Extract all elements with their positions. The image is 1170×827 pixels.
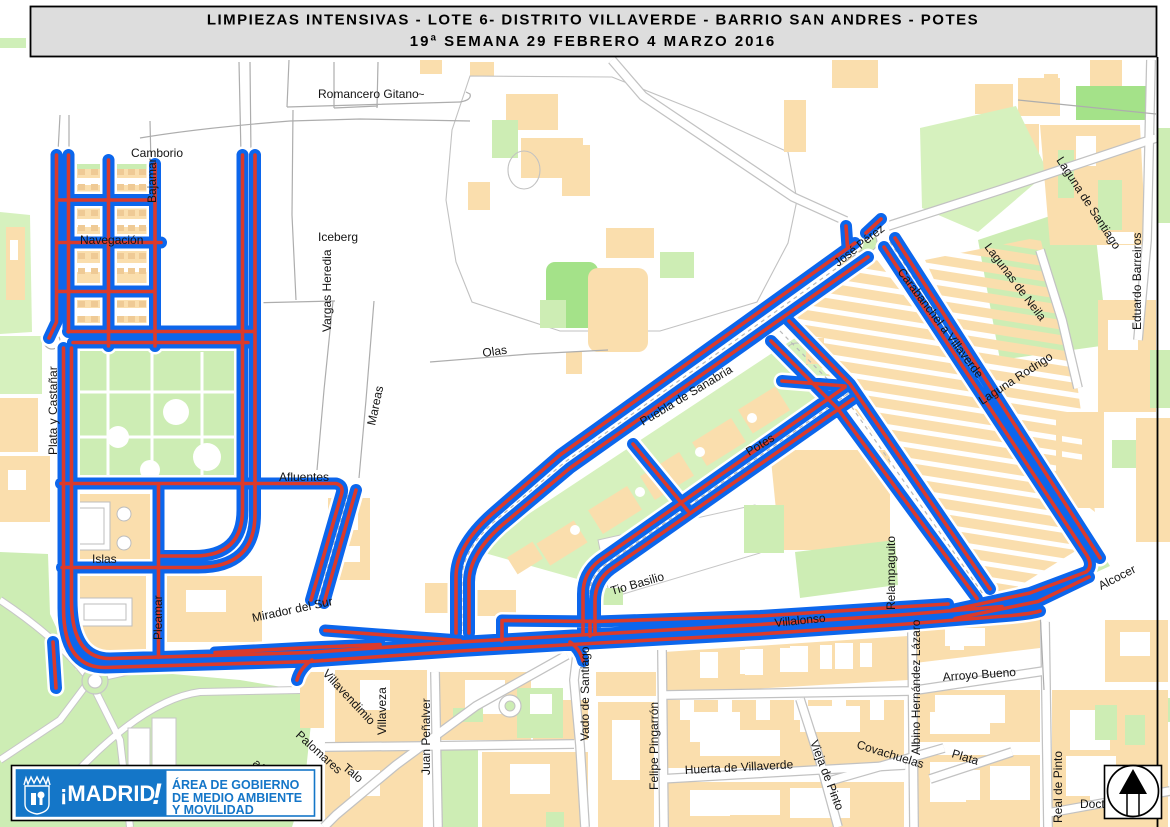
svg-text:LIMPIEZAS INTENSIVAS - LOTE 6-: LIMPIEZAS INTENSIVAS - LOTE 6- DISTRITO …: [207, 12, 979, 29]
svg-text:Juan Peñalver: Juan Peñalver: [419, 698, 433, 775]
svg-text:Islas: Islas: [92, 552, 117, 566]
svg-text:Albino Hernández Lázaro: Albino Hernández Lázaro: [909, 619, 923, 755]
svg-text:Real de Pinto: Real de Pinto: [1051, 751, 1065, 823]
svg-text:ÁREA DE GOBIERNO: ÁREA DE GOBIERNO: [172, 777, 300, 792]
svg-text:!: !: [152, 778, 162, 811]
svg-text:Plata y Castañar: Plata y Castañar: [46, 366, 60, 455]
svg-text:~: ~: [418, 89, 424, 101]
svg-text:Afluentes: Afluentes: [279, 470, 329, 484]
svg-text:19ª SEMANA 29 FEBRERO 4 MARZO: 19ª SEMANA 29 FEBRERO 4 MARZO 2016: [410, 33, 776, 50]
svg-text:Villaveza: Villaveza: [375, 687, 389, 735]
svg-text:Vargas Heredia: Vargas Heredia: [320, 249, 334, 332]
svg-text:Pleamar: Pleamar: [151, 595, 165, 640]
svg-text:Y MOVILIDAD: Y MOVILIDAD: [172, 803, 254, 817]
svg-text:Bajamar: Bajamar: [145, 158, 159, 203]
svg-text:¡MADRID: ¡MADRID: [60, 781, 155, 806]
svg-text:Relampaguito: Relampaguito: [884, 536, 898, 610]
svg-text:Navegación: Navegación: [80, 233, 143, 247]
svg-text:Felipe Pingarrón: Felipe Pingarrón: [647, 702, 661, 790]
svg-text:Romancero Gitano: Romancero Gitano: [318, 87, 419, 101]
svg-text:Eduardo Barreiros: Eduardo Barreiros: [1130, 233, 1144, 330]
svg-text:Vado de Santiago: Vado de Santiago: [578, 646, 592, 741]
svg-text:Iceberg: Iceberg: [318, 230, 358, 244]
svg-text:Camborio: Camborio: [131, 146, 183, 160]
